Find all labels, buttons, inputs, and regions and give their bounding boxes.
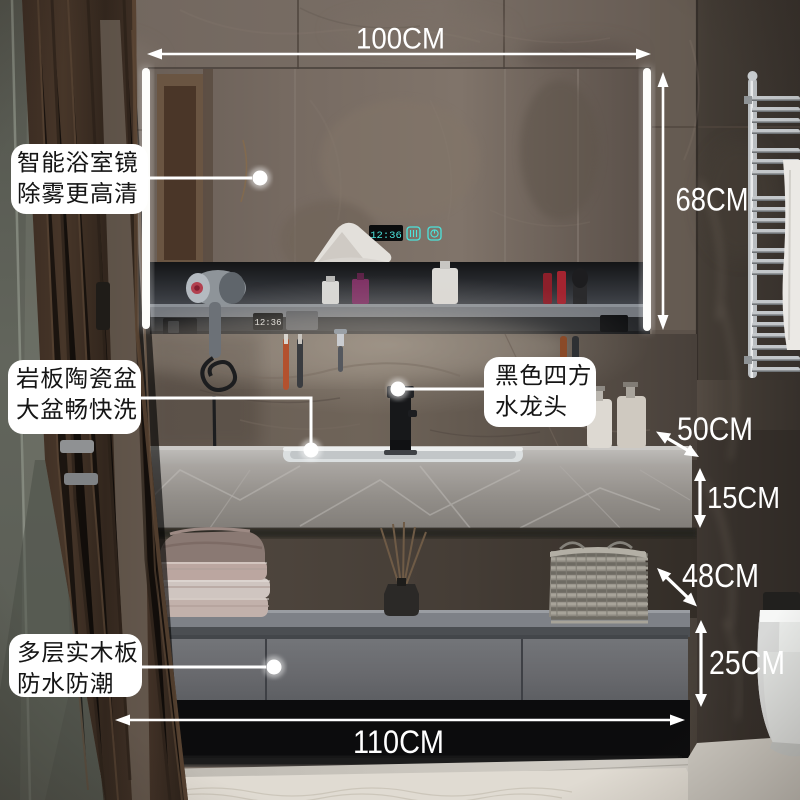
svg-text:25CM: 25CM [709,644,785,681]
svg-text:50CM: 50CM [677,411,753,447]
svg-text:100CM: 100CM [356,23,445,56]
svg-text:15CM: 15CM [707,480,780,515]
svg-text:48CM: 48CM [682,557,759,594]
svg-text:68CM: 68CM [676,182,749,218]
svg-text:110CM: 110CM [353,724,444,760]
